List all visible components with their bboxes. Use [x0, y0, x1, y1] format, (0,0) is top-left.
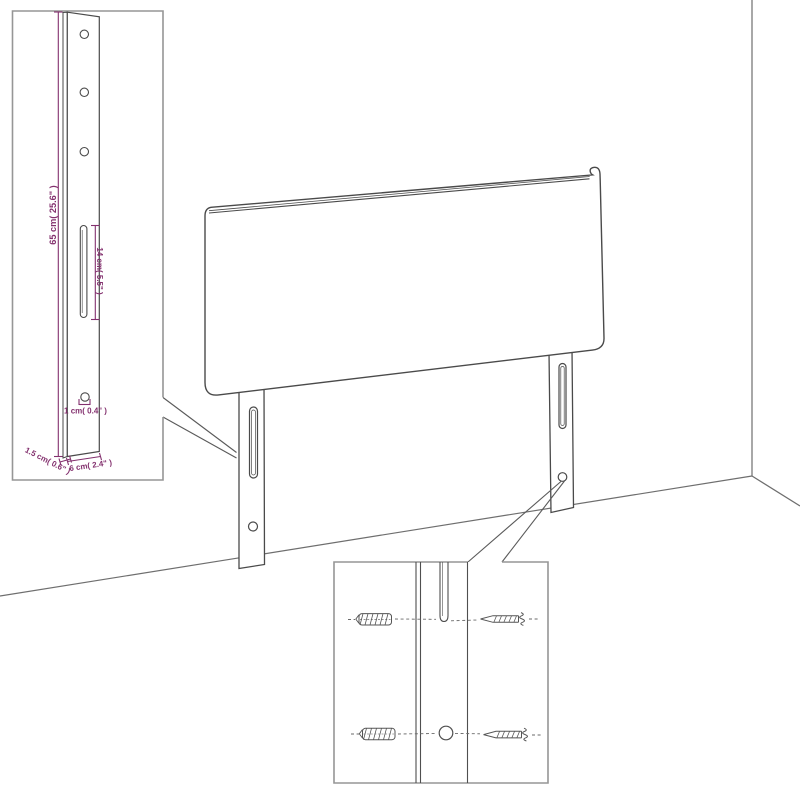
dimension-label-post-height: 65 cm( 25.6" ): [48, 185, 58, 245]
leader-line-bottom: [163, 417, 237, 458]
left-leg-hole: [249, 522, 258, 531]
fastener-inset-background: [334, 562, 548, 783]
headboard-dimension-diagram: 65 cm( 25.6" ) 14 cm( 5.5" ) 1 cm( 0.4" …: [0, 0, 800, 800]
dimension-label-slot-height: 14 cm( 5.5" ): [95, 247, 104, 295]
callout-line-right: [502, 481, 565, 562]
post-inset-leader-lines: [163, 398, 237, 459]
fastener-callout-lines: [468, 481, 565, 562]
panel-outline: [205, 167, 604, 395]
headboard-panel: [205, 167, 604, 395]
floor-line-right: [752, 476, 800, 506]
left-leg: [239, 383, 265, 569]
fastener-detail-inset: [334, 562, 548, 783]
dimension-label-hole-size: 1 cm( 0.4" ): [64, 407, 107, 416]
leader-line-top: [163, 398, 237, 453]
diagram-canvas: 65 cm( 25.6" ) 14 cm( 5.5" ) 1 cm( 0.4" …: [0, 0, 800, 800]
post-front-face: [67, 12, 99, 456]
right-leg-hole: [558, 473, 567, 482]
post-side-face: [63, 12, 67, 458]
post-detail-inset: 65 cm( 25.6" ) 14 cm( 5.5" ) 1 cm( 0.4" …: [13, 11, 164, 480]
callout-line-left: [468, 481, 562, 562]
